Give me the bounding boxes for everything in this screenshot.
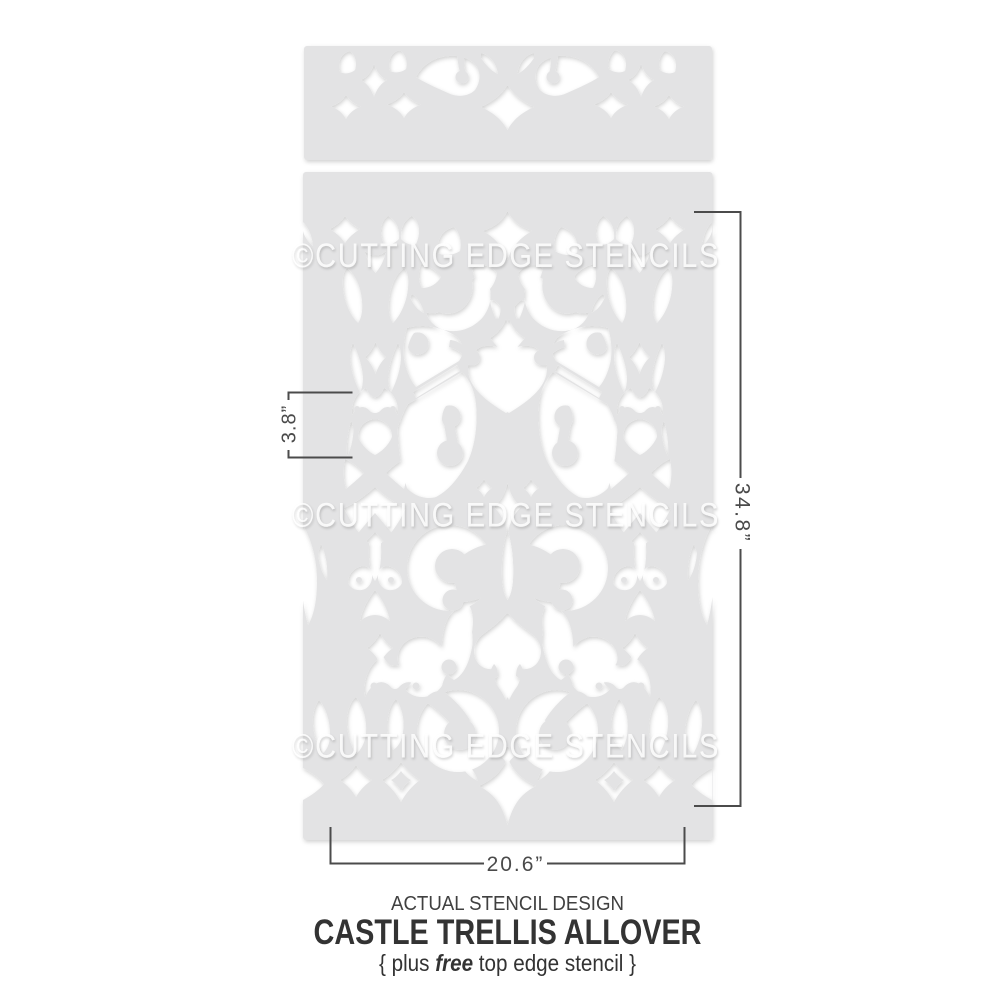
svg-text:CASTLE TRELLIS ALLOVER: CASTLE TRELLIS ALLOVER: [314, 913, 702, 952]
svg-text:©CUTTING EDGE STENCILS: ©CUTTING EDGE STENCILS: [292, 728, 720, 766]
svg-text:3.8”: 3.8”: [278, 405, 300, 443]
svg-text:{ plus free top edge stencil }: { plus free top edge stencil }: [379, 950, 636, 976]
svg-text:20.6”: 20.6”: [487, 853, 545, 876]
svg-text:©CUTTING EDGE STENCILS: ©CUTTING EDGE STENCILS: [292, 497, 720, 535]
svg-text:©CUTTING EDGE STENCILS: ©CUTTING EDGE STENCILS: [292, 237, 720, 275]
svg-text:34.8”: 34.8”: [730, 483, 753, 543]
svg-text:ACTUAL STENCIL DESIGN: ACTUAL STENCIL DESIGN: [391, 893, 624, 915]
